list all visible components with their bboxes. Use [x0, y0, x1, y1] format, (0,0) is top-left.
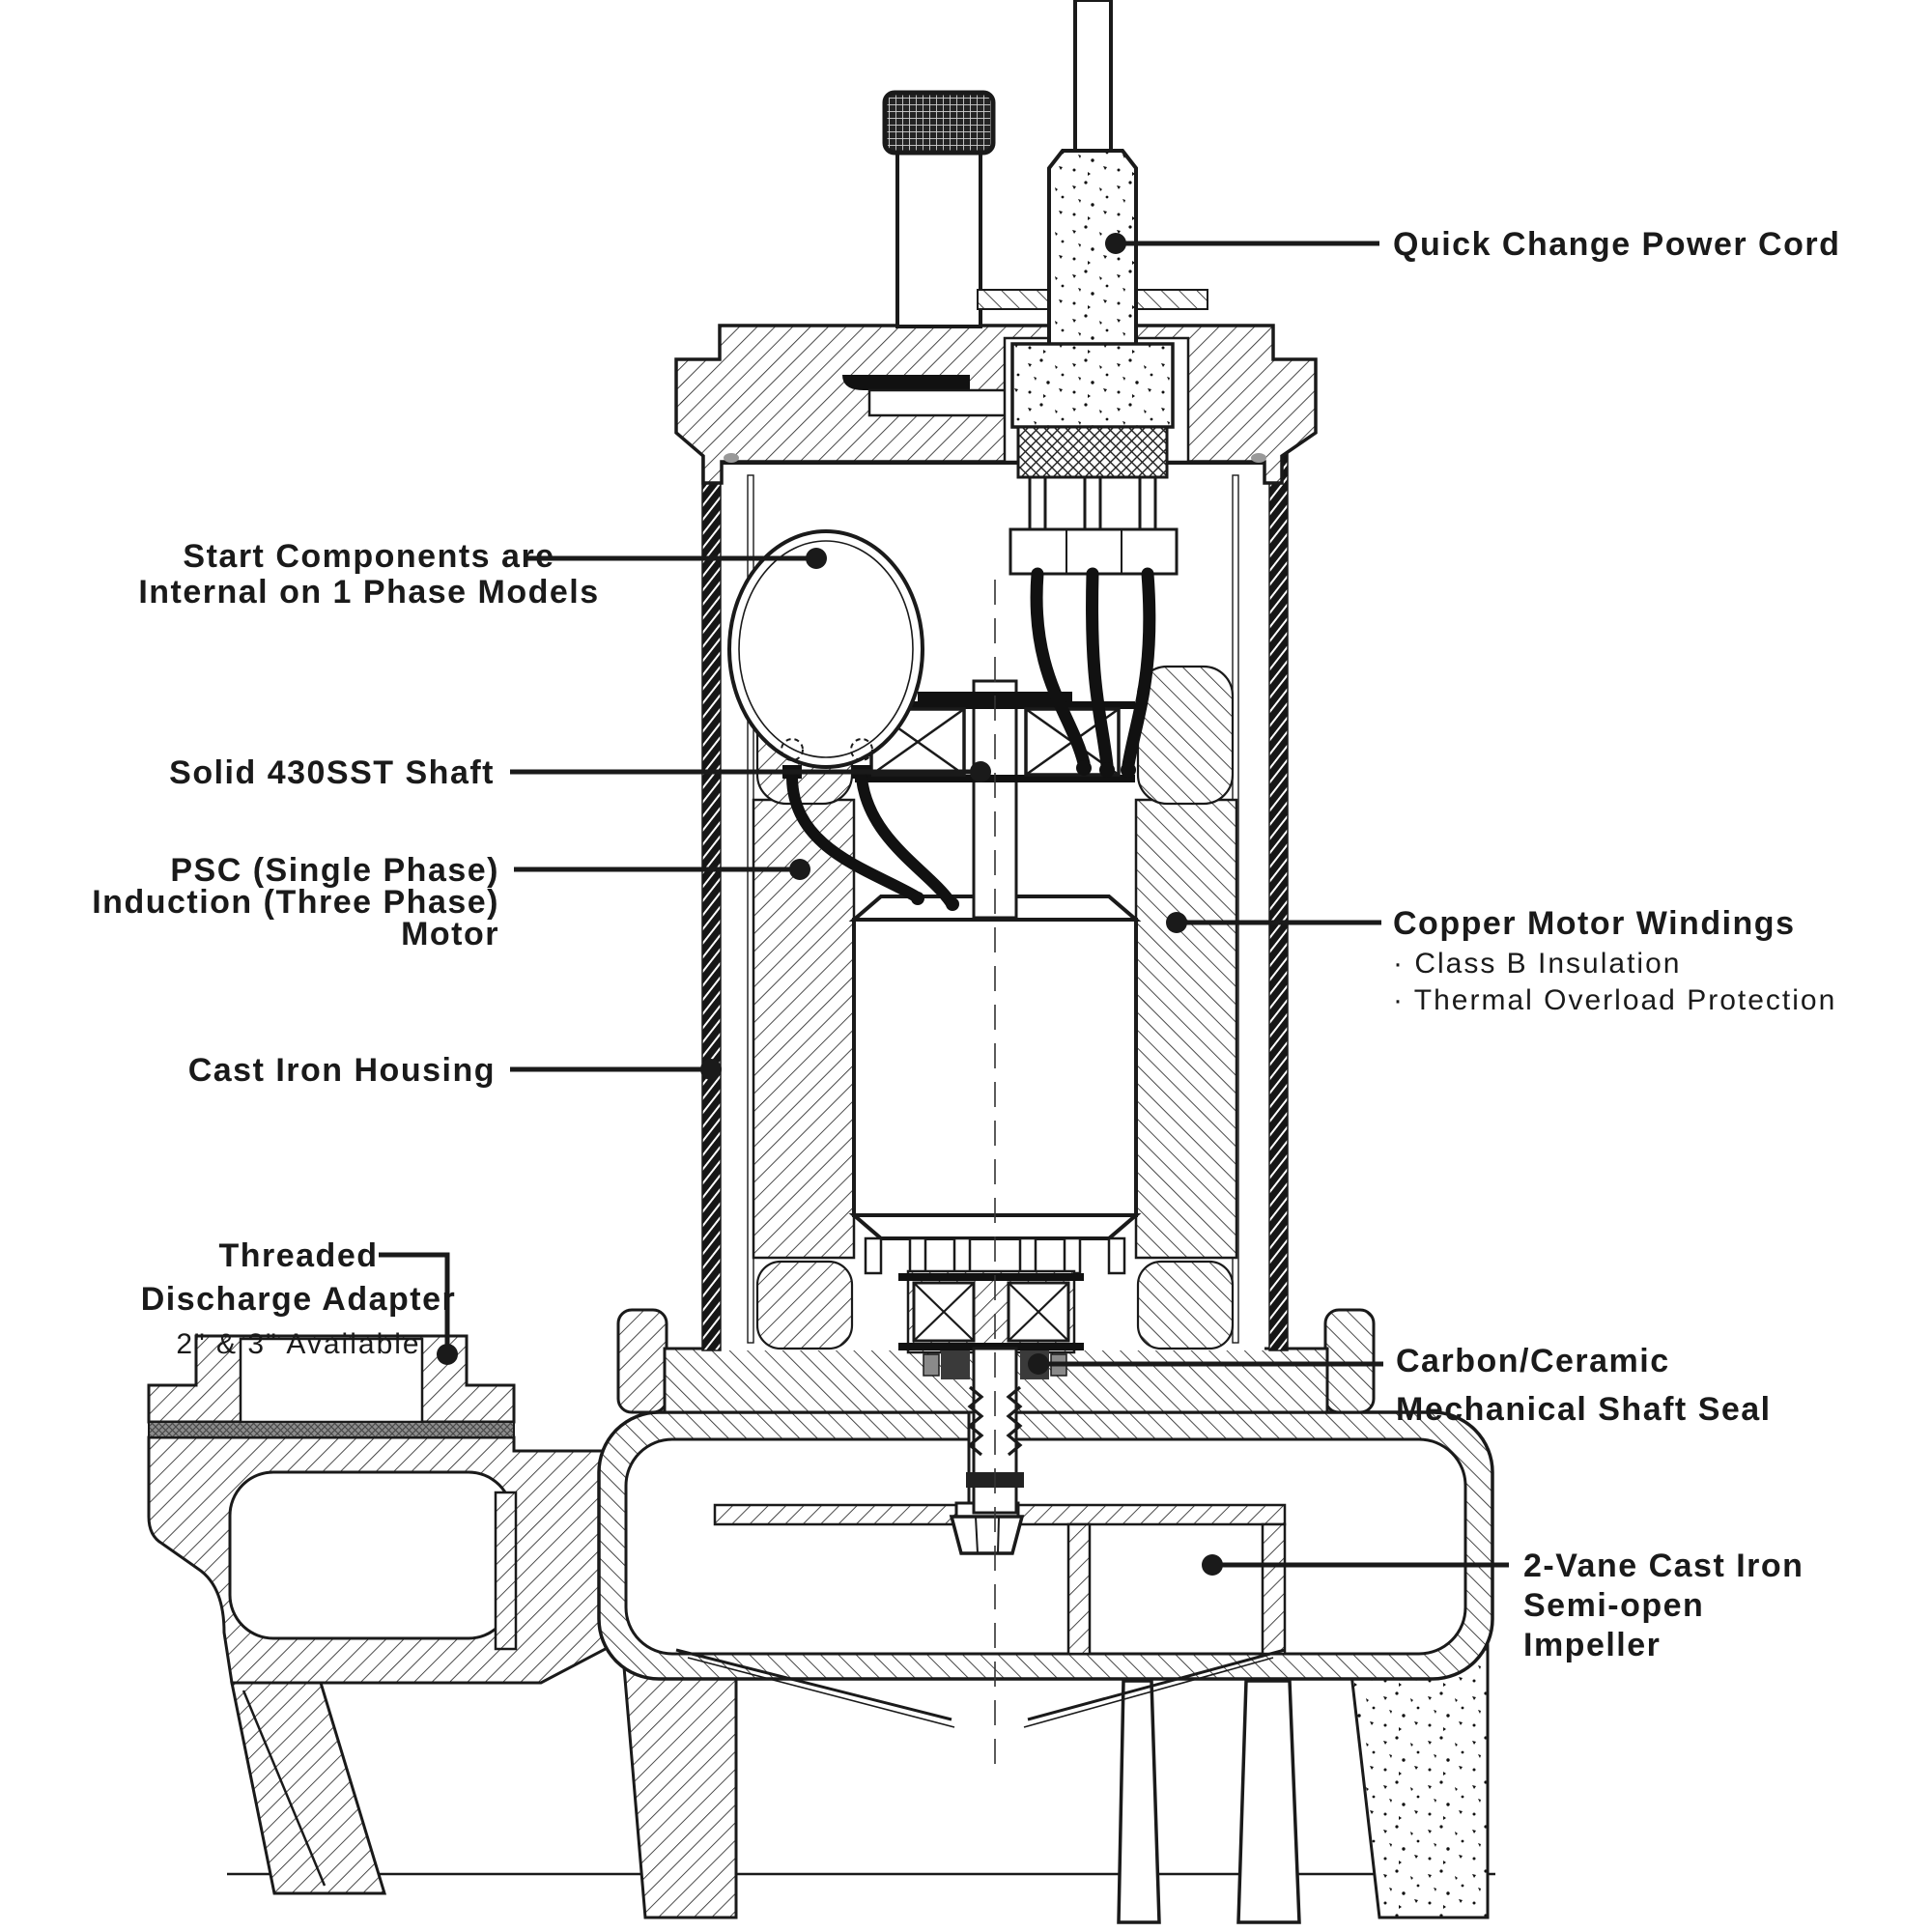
label-discharge-2: Discharge Adapter — [141, 1281, 457, 1318]
right-leg — [1350, 1644, 1488, 1918]
callout-discharge-adapter: Threaded Discharge Adapter 2" & 3" Avail… — [141, 1237, 458, 1365]
winding-end-lower-left — [757, 1262, 852, 1349]
gasket-plate-left — [978, 290, 1051, 309]
inlet-channel-wall-left — [496, 1492, 516, 1649]
leader-dot — [970, 761, 991, 782]
volute-casing — [599, 1412, 1492, 1727]
volute-cavity — [626, 1439, 1465, 1654]
cap-latch — [842, 375, 970, 390]
label-seal-1: Carbon/Ceramic — [1396, 1343, 1670, 1379]
center-right-leg — [1238, 1681, 1299, 1922]
leader-dot — [806, 548, 827, 569]
pump-cutaway-diagram: Quick Change Power Cord Start Components… — [0, 0, 1932, 1932]
label-impeller-3: Impeller — [1523, 1627, 1661, 1663]
leader-dot — [1028, 1353, 1049, 1375]
flange-ear-left — [618, 1310, 667, 1412]
adapter-thread-band — [149, 1422, 514, 1437]
diagram-canvas: Quick Change Power Cord Start Components… — [0, 0, 1932, 1932]
label-discharge-3: 2" & 3" Available — [176, 1328, 420, 1360]
stator-right — [1136, 800, 1236, 1258]
callout-power-cord: Quick Change Power Cord — [1105, 226, 1840, 263]
leader-dot — [1105, 233, 1126, 254]
handle-tube — [897, 147, 980, 327]
leader-dot — [1202, 1554, 1223, 1576]
housing-wall-left — [702, 454, 721, 1350]
label-impeller-1: 2-Vane Cast Iron — [1523, 1548, 1804, 1584]
plug-block — [1018, 427, 1167, 477]
housing-wall-right — [1269, 454, 1288, 1350]
leader-dot — [1166, 912, 1187, 933]
o-ring-right — [1251, 453, 1266, 463]
label-windings-bullet-1: · Class B Insulation — [1393, 948, 1681, 980]
label-power-cord: Quick Change Power Cord — [1393, 226, 1840, 263]
label-windings-title: Copper Motor Windings — [1393, 905, 1795, 942]
label-housing: Cast Iron Housing — [188, 1052, 496, 1089]
gasket-plate-right — [1136, 290, 1207, 309]
leader-dot — [700, 1059, 722, 1080]
label-seal-2: Mechanical Shaft Seal — [1396, 1391, 1772, 1428]
adapter-cavity — [230, 1472, 512, 1638]
callout-windings: Copper Motor Windings · Class B Insulati… — [1166, 905, 1836, 1016]
leader-dot — [437, 1344, 458, 1365]
center-leg — [1119, 1681, 1159, 1922]
discharge-adapter — [149, 1336, 647, 1683]
cord-grommet-base — [1012, 344, 1173, 427]
label-impeller-2: Semi-open — [1523, 1587, 1704, 1624]
left-leg — [623, 1656, 736, 1918]
impeller-shroud — [1263, 1524, 1285, 1654]
label-start-components-2: Internal on 1 Phase Models — [138, 574, 599, 611]
label-shaft: Solid 430SST Shaft — [169, 754, 495, 791]
winding-end-lower-right — [1138, 1262, 1233, 1349]
winding-end-upper-right — [1138, 667, 1233, 804]
leader-dot — [789, 859, 810, 880]
adapter-foot — [232, 1683, 384, 1893]
label-start-components-1: Start Components are — [183, 538, 554, 575]
plug-socket — [1010, 529, 1177, 574]
o-ring-left — [724, 453, 739, 463]
top-cap — [676, 326, 1316, 483]
label-discharge-1: Threaded — [218, 1237, 378, 1274]
cap-step — [869, 390, 1014, 415]
seal-face-left — [941, 1350, 970, 1379]
support-legs — [232, 1644, 1488, 1922]
callout-housing: Cast Iron Housing — [188, 1052, 722, 1089]
flange-ear-right — [1325, 1310, 1374, 1412]
handle-knurled-cap — [885, 93, 993, 153]
label-motor-3: Motor — [401, 916, 499, 952]
label-windings-bullet-2: · Thermal Overload Protection — [1393, 984, 1836, 1016]
impeller-vane — [1068, 1524, 1090, 1654]
